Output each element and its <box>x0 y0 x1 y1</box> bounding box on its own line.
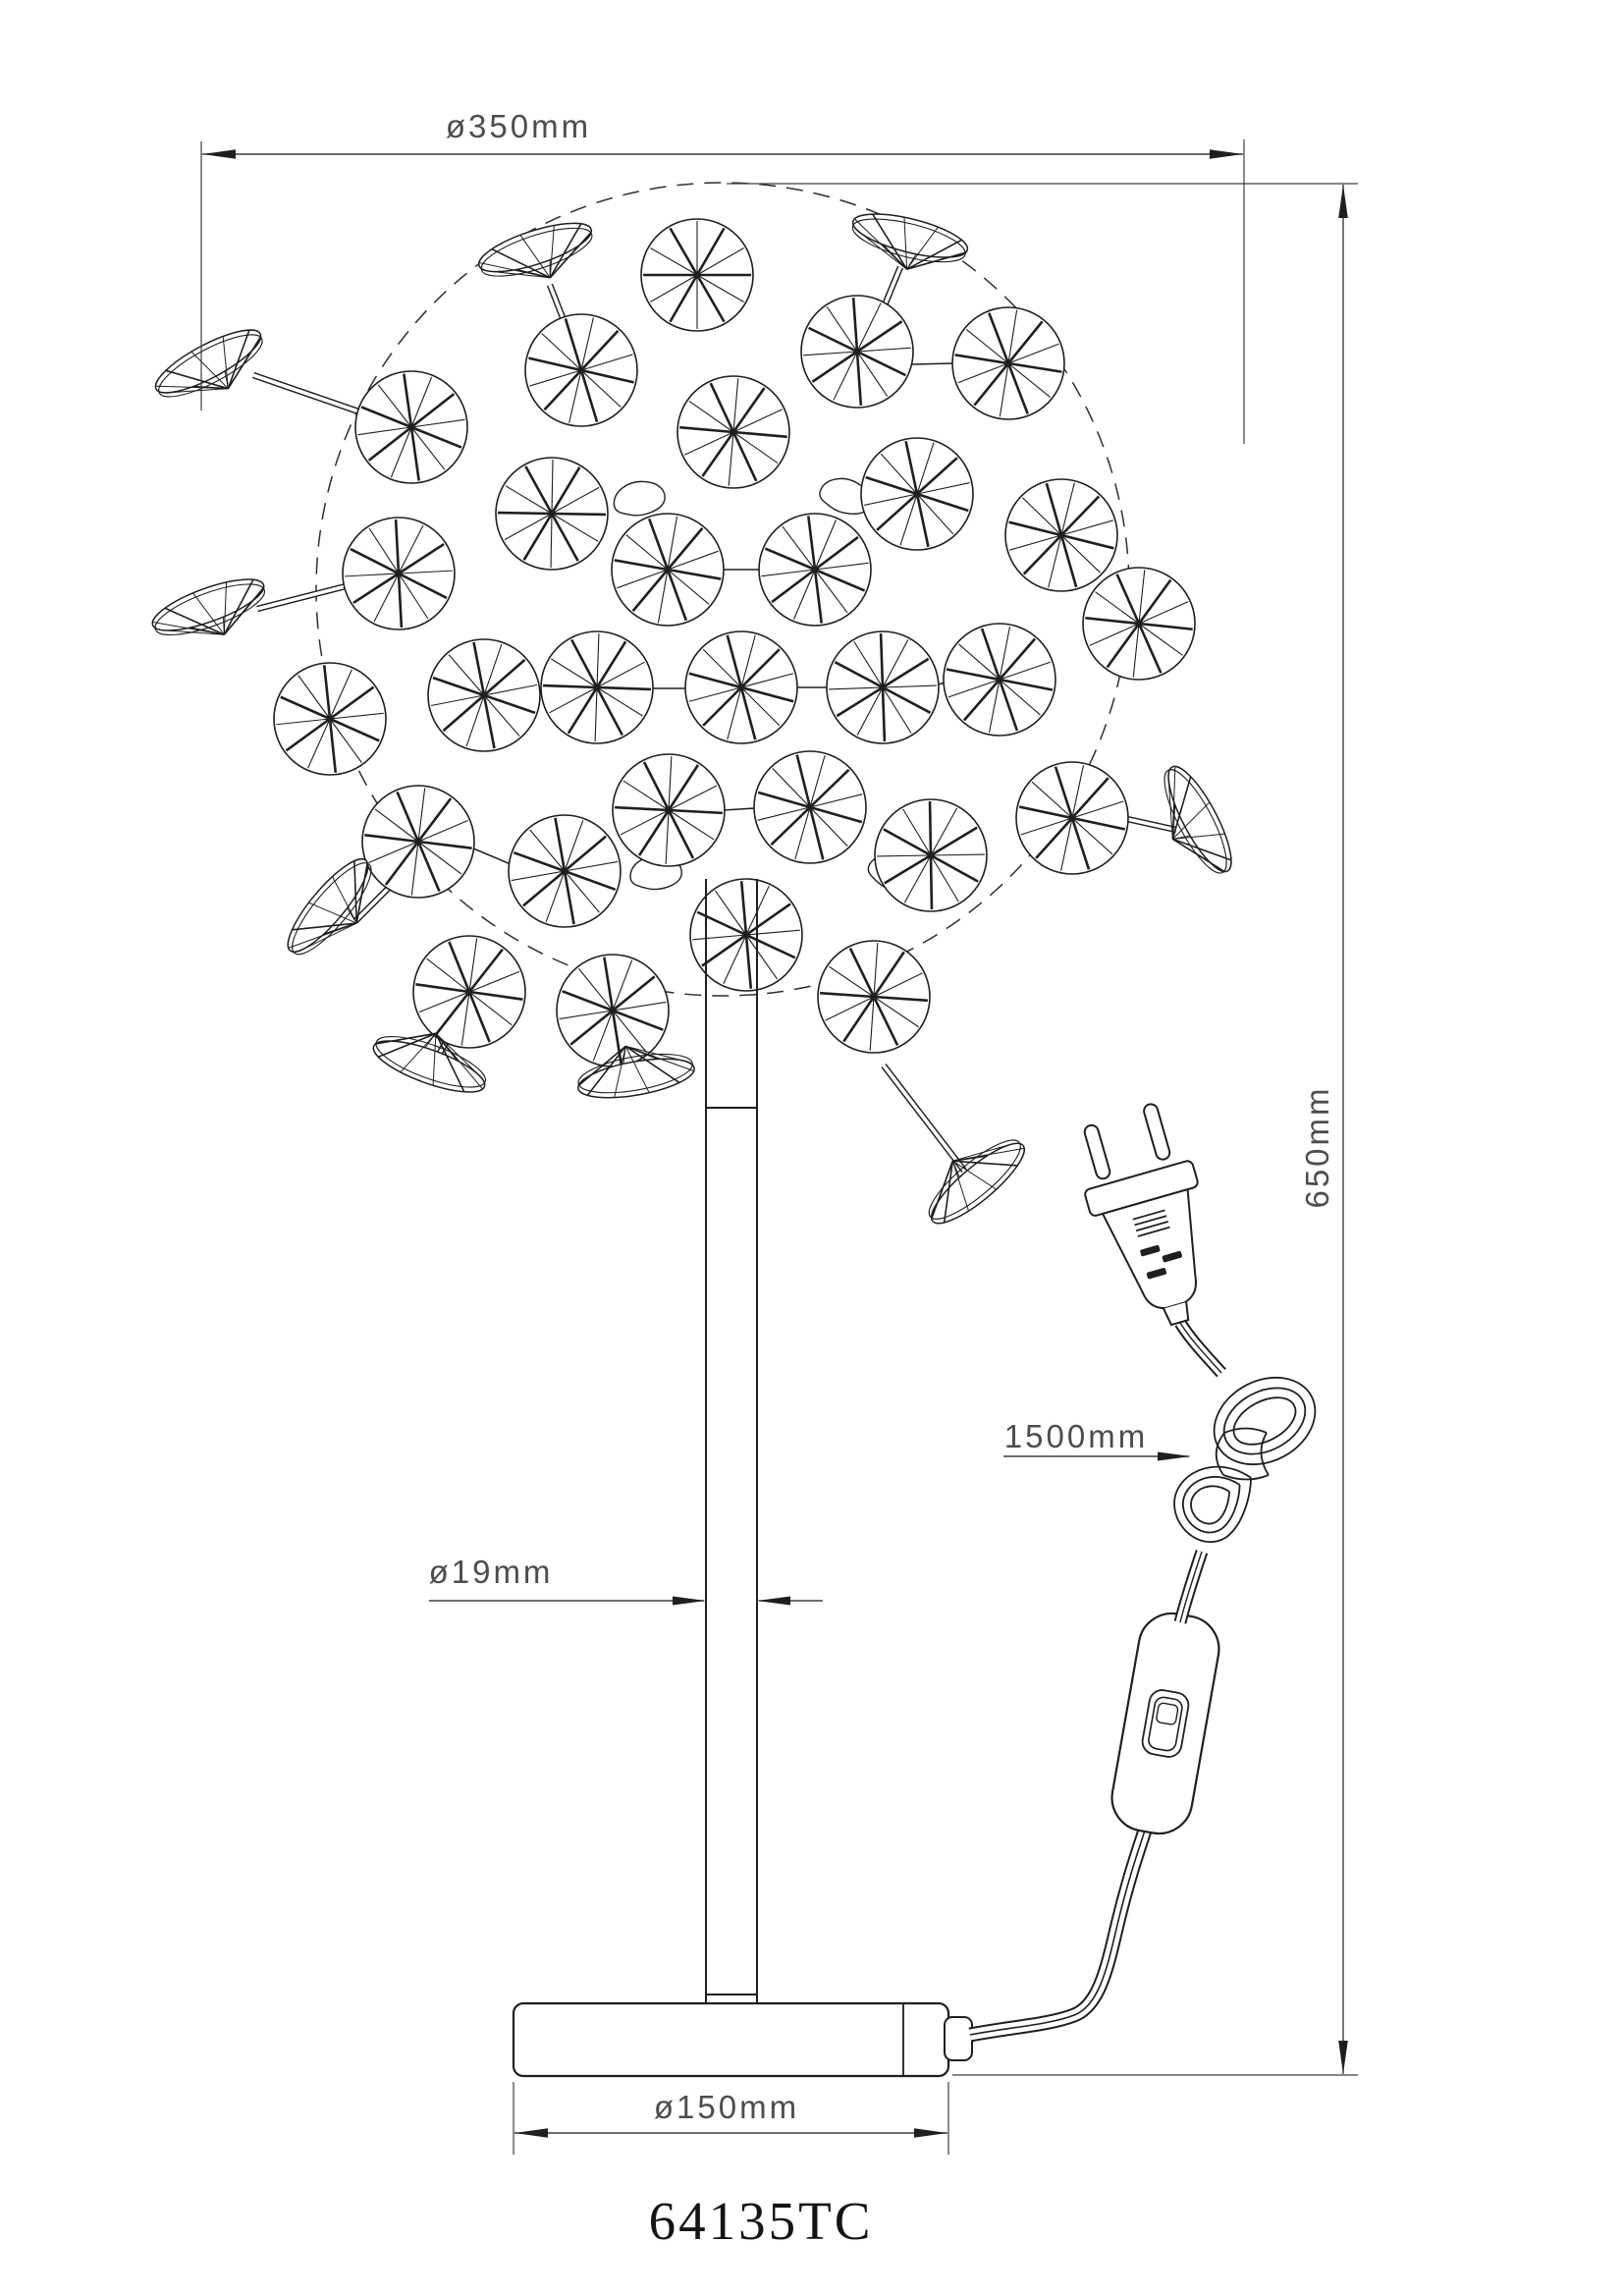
pinwheel-flower <box>525 314 637 426</box>
pinwheel-flower <box>827 631 939 743</box>
coil-exit-cord <box>1180 1552 1202 1622</box>
pinwheel-flower <box>343 518 455 629</box>
overall-height-label: 650mm <box>1301 1000 1334 1294</box>
pinwheel-flower <box>541 631 653 743</box>
lamp-base <box>514 2003 972 2076</box>
lamp-pole <box>706 879 757 2003</box>
pinwheel-flower <box>274 663 386 775</box>
pinwheel-flower <box>801 296 913 408</box>
power-cord <box>970 1831 1145 2035</box>
arrow-right-icon <box>914 2128 947 2138</box>
cone-flower <box>911 1120 1034 1233</box>
pinwheel-flower <box>944 624 1055 736</box>
pinwheel-flower <box>1083 568 1195 680</box>
pinwheel-flower <box>612 514 724 626</box>
arrow-right-icon <box>1210 149 1243 159</box>
pinwheel-flower <box>952 307 1064 419</box>
arrow-left-icon <box>514 2128 548 2138</box>
pinwheel-flower <box>861 438 973 550</box>
pinwheel-flower <box>428 639 540 751</box>
plug-prong <box>1083 1123 1111 1180</box>
pinwheel-flower <box>496 458 608 570</box>
plug-prong <box>1142 1103 1170 1162</box>
pinwheel-flower <box>685 631 797 743</box>
pinwheel-flower <box>1016 762 1128 874</box>
arrow-down-icon <box>1338 2041 1348 2074</box>
cord-length-label: 1500mm <box>929 1420 1223 1453</box>
pinwheel-flower <box>613 754 725 866</box>
pinwheel-flower <box>413 936 525 1048</box>
arrow-right-icon <box>673 1597 706 1606</box>
cone-flower <box>474 213 602 298</box>
arrow-left-icon <box>202 149 236 159</box>
inline-switch <box>1107 1609 1224 1839</box>
pinwheel-flower <box>362 786 474 898</box>
dim-overall-height <box>727 184 1358 2075</box>
pinwheel-flower <box>509 815 621 927</box>
plug-body <box>1103 1189 1217 1318</box>
pinwheel-flower <box>641 219 753 331</box>
pinwheel-flower <box>690 879 802 991</box>
arrow-left-icon <box>757 1597 790 1606</box>
cord-strain-relief <box>945 2017 972 2060</box>
pinwheel-flowers <box>274 219 1195 1066</box>
model-code-label: 64135TC <box>565 2194 957 2249</box>
base-diameter-label: ø150mm <box>579 2091 874 2124</box>
technical-drawing-page: ø350mm 650mm ø19mm 1500mm ø150mm 64135TC <box>0 0 1623 2296</box>
pinwheel-flower <box>818 941 930 1053</box>
plug-cable <box>1180 1323 1221 1373</box>
head-diameter-label: ø350mm <box>371 110 666 143</box>
dim-pole-diameter <box>429 1597 823 1606</box>
power-plug <box>1066 1097 1234 1338</box>
pinwheel-flower <box>557 955 669 1066</box>
pinwheel-flower <box>677 376 789 488</box>
pinwheel-flower <box>759 514 871 626</box>
pole-diameter-label: ø19mm <box>344 1556 638 1589</box>
cone-flower <box>148 319 276 418</box>
pinwheel-flower <box>1005 479 1117 591</box>
lamp-head <box>147 183 1242 1234</box>
lamp-dimension-diagram <box>0 0 1623 2296</box>
arrow-up-icon <box>1338 185 1348 218</box>
pinwheel-flower <box>875 799 987 911</box>
cone-flower <box>147 570 275 657</box>
cone-flower <box>845 205 972 283</box>
pinwheel-flower <box>754 751 866 863</box>
cable-coil <box>1166 1360 1330 1549</box>
pinwheel-flower <box>355 371 467 483</box>
